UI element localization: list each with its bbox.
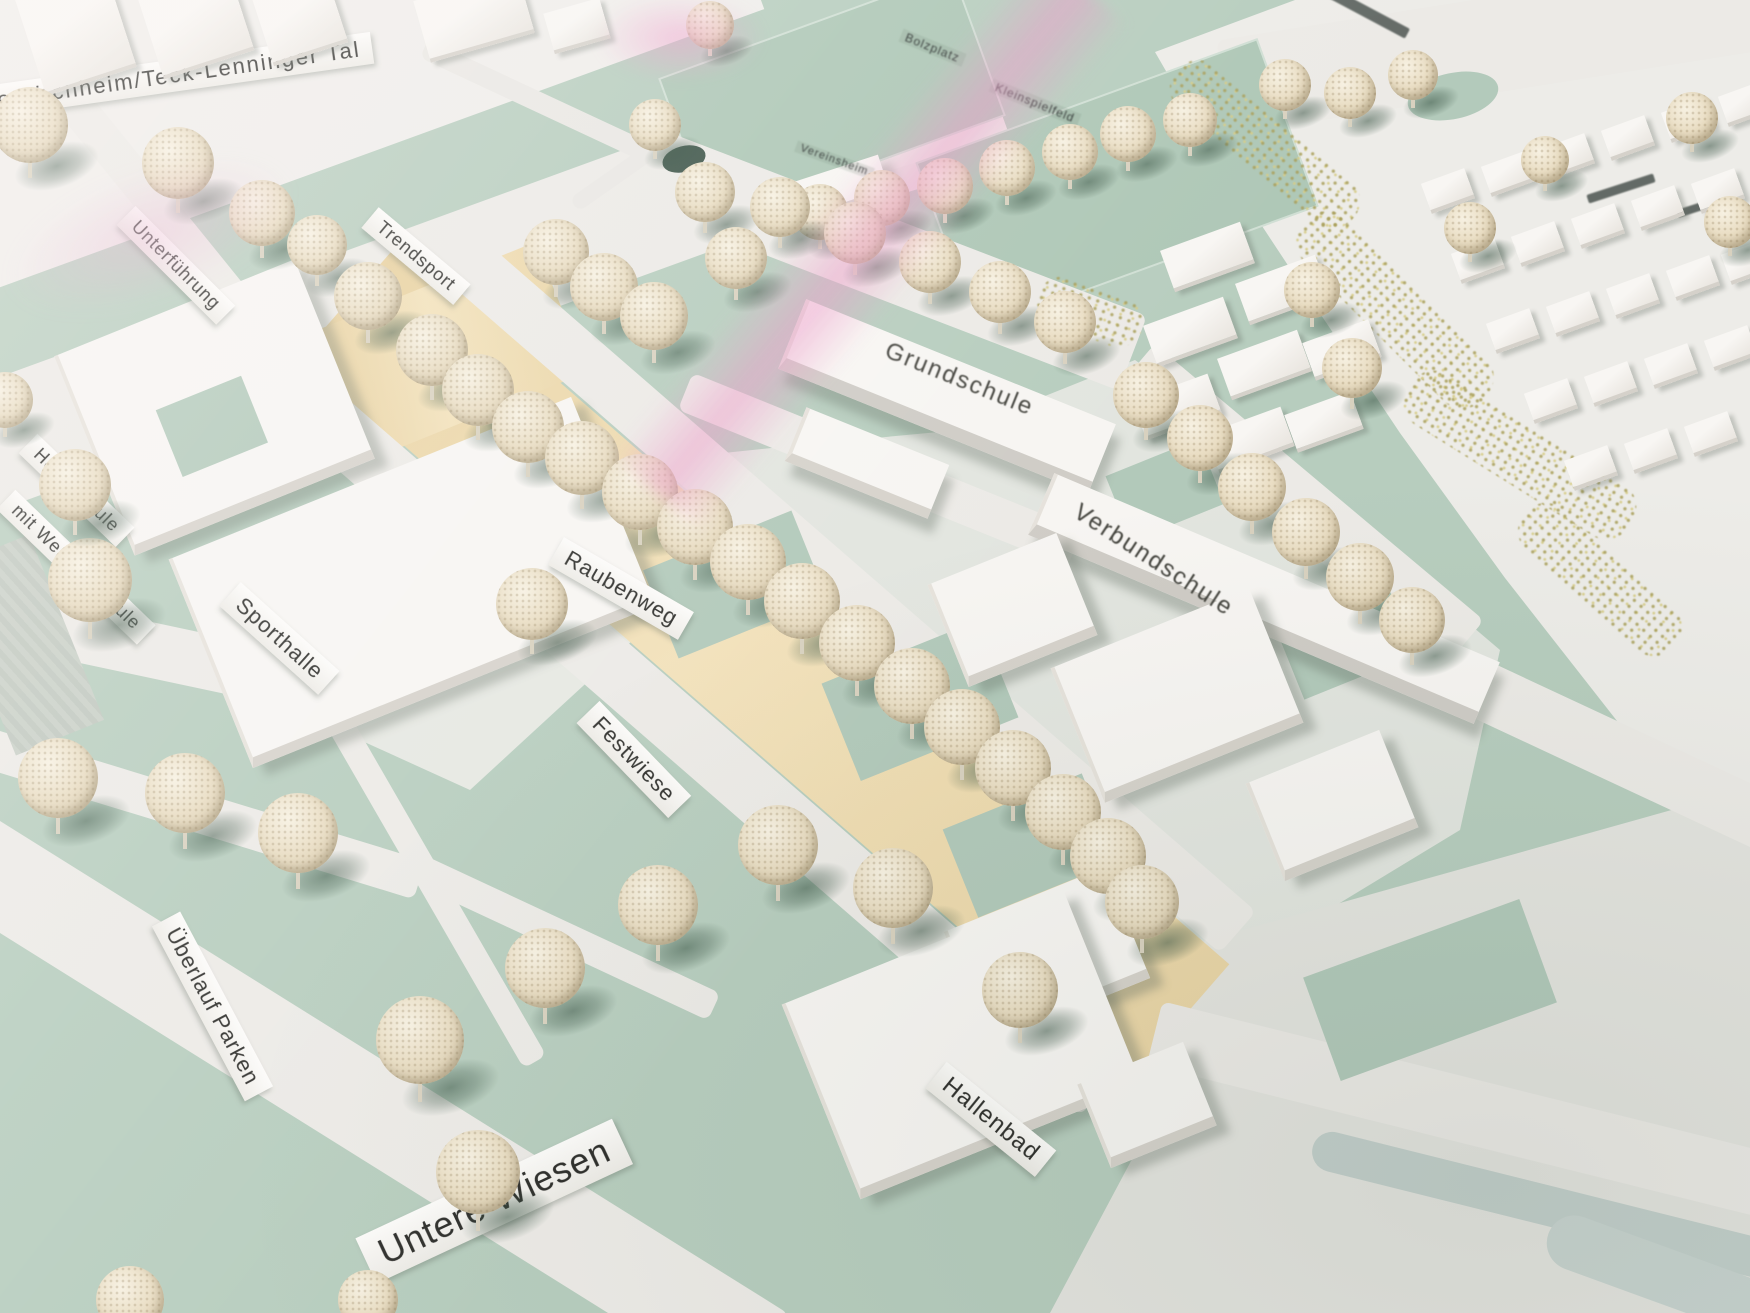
model-tree [1034,291,1096,372]
tree-canopy [1105,865,1179,939]
tree-canopy [969,261,1031,323]
model-tree [39,449,111,543]
tree-canopy [853,848,933,928]
tree-canopy [258,793,338,873]
tree-canopy [1388,50,1438,100]
model-tree [738,805,818,909]
model-tree [1042,124,1098,197]
model-tree [899,231,961,312]
tree-canopy [1259,59,1311,111]
model-tree [258,793,338,897]
tree-canopy [675,162,735,222]
tree-canopy [145,753,225,833]
model-tree [618,865,698,969]
model-tree [1666,92,1718,160]
tree-canopy [1704,196,1750,248]
tree-canopy [618,865,698,945]
tree-canopy [738,805,818,885]
model-tree [505,928,585,1032]
model-tree [1284,262,1340,335]
model-tree [1444,202,1496,270]
tree-canopy [982,952,1058,1028]
tree-canopy [1666,92,1718,144]
model-tree [145,753,225,857]
model-tree [1521,136,1569,198]
model-tree [436,1130,520,1239]
model-photo: ile Kirchheim/Teck-Lenninger Tal Unterfü… [0,0,1750,1313]
tree-canopy [1379,587,1445,653]
tree-canopy [1034,291,1096,353]
model-tree [1388,50,1438,115]
model-tree [0,372,33,445]
tree-canopy [1521,136,1569,184]
tree-canopy [436,1130,520,1214]
model-tree [982,952,1058,1051]
tree-canopy [48,538,132,622]
model-tree [979,140,1035,213]
tree-canopy [334,262,402,330]
tree-canopy [705,227,767,289]
tree-canopy [142,127,214,199]
model-tree [1324,67,1376,135]
tree-canopy [824,202,886,264]
tree-canopy [1444,202,1496,254]
model-tree [705,227,767,308]
hauptschule-courtyard [156,376,268,477]
model-tree [620,282,688,370]
model-tree [229,180,295,266]
tree-canopy [620,282,688,350]
tree-canopy [39,449,111,521]
model-tree [686,1,734,63]
model-tree [0,87,68,186]
model-tree [142,127,214,221]
model-tree [824,202,886,283]
tree-canopy [18,738,98,818]
model-tree [1379,587,1445,673]
model-tree [629,99,681,167]
model-tree [334,262,402,350]
model-tree [96,1266,164,1313]
tree-canopy [917,158,973,214]
model-tree [376,996,464,1110]
tree-canopy [1042,124,1098,180]
tree-canopy [629,99,681,151]
tree-canopy [496,568,568,640]
model-tree [1259,59,1311,127]
model-tree [917,158,973,231]
tree-canopy [1163,93,1217,147]
tree-canopy [899,231,961,293]
model-tree [496,568,568,662]
tree-canopy [338,1270,398,1313]
model-tree [1105,865,1179,961]
tree-canopy [376,996,464,1084]
tree-canopy [979,140,1035,196]
tree-canopy [505,928,585,1008]
model-tree [18,738,98,842]
tree-canopy [1284,262,1340,318]
tree-canopy [229,180,295,246]
model-tree [48,538,132,647]
tree-canopy [1100,106,1156,162]
model-tree [338,1270,398,1313]
model-tree [1163,93,1217,163]
model-tree [1100,106,1156,179]
model-tree [1322,338,1382,416]
model-tree [853,848,933,952]
tree-canopy [1324,67,1376,119]
tree-canopy [686,1,734,49]
tree-canopy [96,1266,164,1313]
model-tree [1704,196,1750,264]
tree-canopy [1322,338,1382,398]
model-tree [969,261,1031,342]
